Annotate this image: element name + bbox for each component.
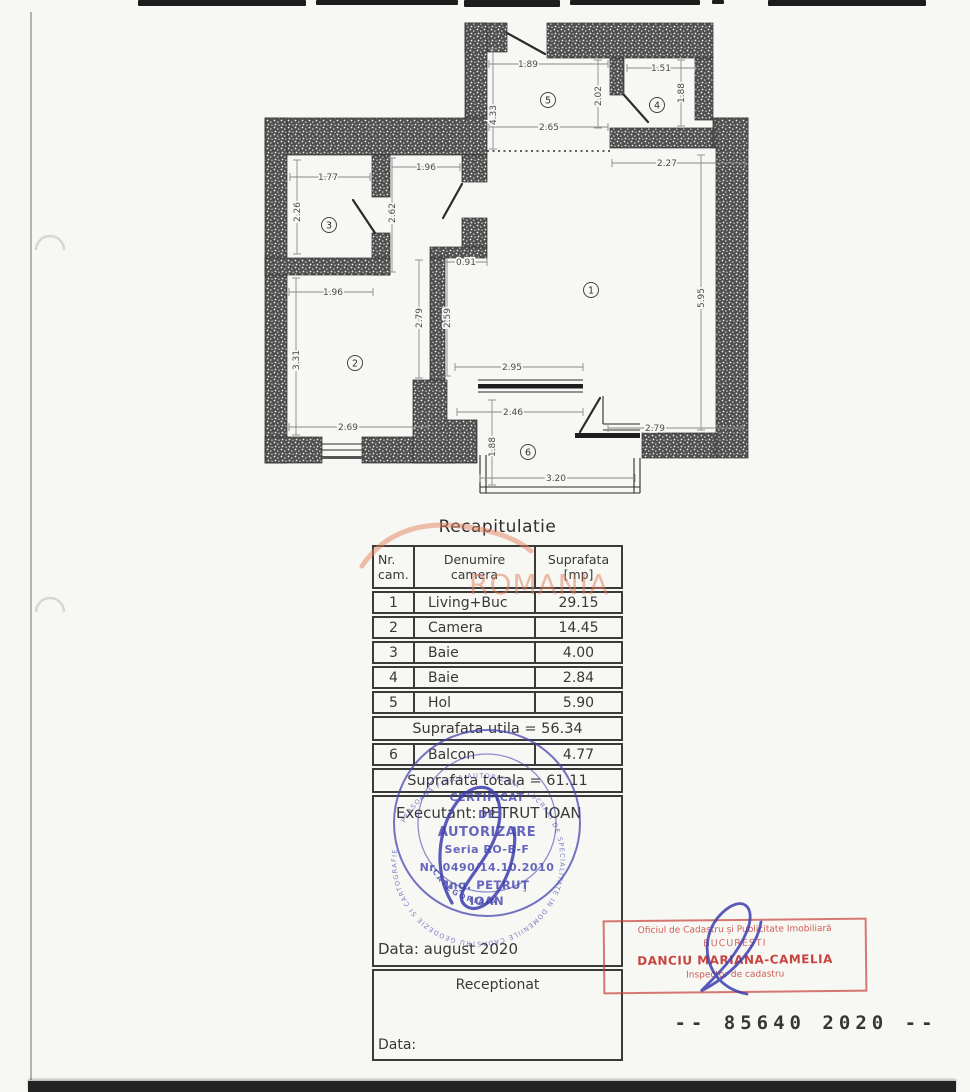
wall: [430, 247, 487, 258]
room-number-label: 4: [654, 101, 660, 112]
header-line: cam.: [378, 567, 409, 582]
dimension-label: 2.79: [645, 424, 665, 434]
row-number: 6: [374, 745, 415, 764]
room-name: Camera: [415, 618, 536, 637]
dimension-label: 1.88: [677, 83, 687, 103]
dimension-label: 2.59: [443, 308, 453, 328]
registration-number-stamp: -- 85640 2020 --: [648, 1012, 964, 1034]
dimension-label: 2.69: [338, 423, 358, 433]
wall: [610, 58, 624, 95]
suprafata-utila-row: Suprafata utila = 56.34: [372, 716, 623, 741]
reception-date-label: Data:: [378, 1037, 416, 1053]
dimension-label: 4.33: [489, 105, 499, 125]
room-number-label: 5: [545, 96, 551, 107]
dimension-label: 2.26: [293, 202, 303, 222]
executant-label: Executant: PETRUT IOAN: [396, 804, 582, 822]
dimension-label: 2.02: [594, 86, 604, 106]
row-number: 2: [374, 618, 415, 637]
wall: [716, 118, 748, 458]
room-area: 14.45: [536, 618, 621, 637]
scan-bottom-edge: [28, 1081, 956, 1092]
door-leaf: [443, 184, 462, 218]
dimension-label: 2.95: [502, 363, 522, 373]
room-area: 4.00: [536, 643, 621, 662]
table-row: 3Baie4.00: [372, 641, 623, 664]
door-leaf: [624, 95, 648, 122]
dimension-label: 2.27: [657, 159, 677, 169]
table-row: 2Camera14.45: [372, 616, 623, 639]
room-area: 5.90: [536, 693, 621, 712]
wall: [695, 58, 713, 120]
recap-title: Recapitulatie: [372, 517, 623, 537]
room-number-label: 3: [326, 221, 332, 232]
room-name: Balcon: [415, 745, 536, 764]
dimension-label: 1.51: [651, 64, 671, 74]
suprafata-totala-row: Suprafata totala = 61.11: [372, 768, 623, 793]
dimension-label: 1.77: [318, 173, 338, 183]
room-name: Baie: [415, 643, 536, 662]
wall: [547, 23, 713, 58]
dimension-label: 2.79: [415, 308, 425, 328]
dimension-label: 1.88: [488, 437, 498, 457]
dimension-label: 3.31: [292, 350, 302, 370]
row-number: 1: [374, 593, 415, 612]
door-leaf: [507, 33, 545, 54]
door-leaf: [353, 200, 375, 233]
receptionat-label: Receptionat: [374, 977, 621, 993]
dimension-label: 3.20: [546, 474, 566, 484]
walls: [265, 23, 748, 463]
balcony-window-sill: [478, 384, 583, 389]
watermark-romania: ROMANIA: [469, 568, 609, 601]
room-name: Baie: [415, 668, 536, 687]
window-sill: [322, 456, 362, 459]
wall: [265, 258, 390, 275]
hole-punch-icon: [36, 598, 64, 612]
table-row: 4Baie2.84: [372, 666, 623, 689]
header-line: Suprafata: [548, 552, 609, 567]
row-number: 4: [374, 668, 415, 687]
wall: [372, 155, 390, 197]
inspector-stamp: Oficiul de Cadastru și Publicitate Imobi…: [603, 918, 868, 995]
wall: [610, 128, 713, 148]
wall: [265, 437, 322, 463]
table-row: 5Hol5.90: [372, 691, 623, 714]
room-area: 4.77: [536, 745, 621, 764]
room-number-label: 1: [588, 286, 594, 297]
wall: [265, 118, 287, 463]
receptionat-box: Receptionat Data:: [372, 969, 623, 1061]
wall: [462, 218, 487, 247]
dimension-label: 1.96: [416, 163, 436, 173]
recap-table: Nr. cam. Denumire camera Suprafata [mp] …: [372, 545, 623, 1063]
room-name: Hol: [415, 693, 536, 712]
wall: [465, 23, 487, 120]
windows-balcony: [322, 380, 640, 493]
room-number-label: 6: [525, 448, 531, 459]
header-nr-cam: Nr. cam.: [374, 547, 415, 587]
dimension-label: 1.89: [518, 60, 538, 70]
executant-date: Data: august 2020: [378, 940, 518, 958]
balcon-row: 6 Balcon 4.77: [372, 743, 623, 766]
wall: [413, 380, 477, 463]
executant-box: Executant: PETRUT IOAN Data: august 2020: [372, 795, 623, 967]
scanned-page: 1.891.512.021.882.654.332.271.771.962.26…: [0, 0, 970, 1092]
wall: [462, 155, 487, 182]
inspector-stamp-title: Inspector de cadastru: [605, 968, 865, 984]
dimension-label: 2.46: [503, 408, 523, 418]
wall: [642, 433, 716, 458]
dimension-label: 0.91: [456, 258, 476, 268]
row-number: 5: [374, 693, 415, 712]
dimension-label: 1.96: [323, 288, 343, 298]
recap-rows: 1Living+Buc29.152Camera14.453Baie4.004Ba…: [372, 591, 623, 714]
wall: [265, 118, 487, 155]
balcony-sill: [575, 433, 640, 438]
inspector-stamp-name: DANCIU MARIANA-CAMELIA: [605, 950, 865, 971]
dimension-label: 5.95: [697, 288, 707, 308]
dimension-label: 2.62: [388, 203, 398, 223]
dimension-label: 2.65: [539, 123, 559, 133]
room-area: 2.84: [536, 668, 621, 687]
floor-plan: 1.891.512.021.882.654.332.271.771.962.26…: [0, 0, 970, 520]
row-number: 3: [374, 643, 415, 662]
header-line: Nr.: [378, 552, 395, 567]
header-line: Denumire: [444, 552, 505, 567]
room-number-label: 2: [352, 359, 358, 370]
